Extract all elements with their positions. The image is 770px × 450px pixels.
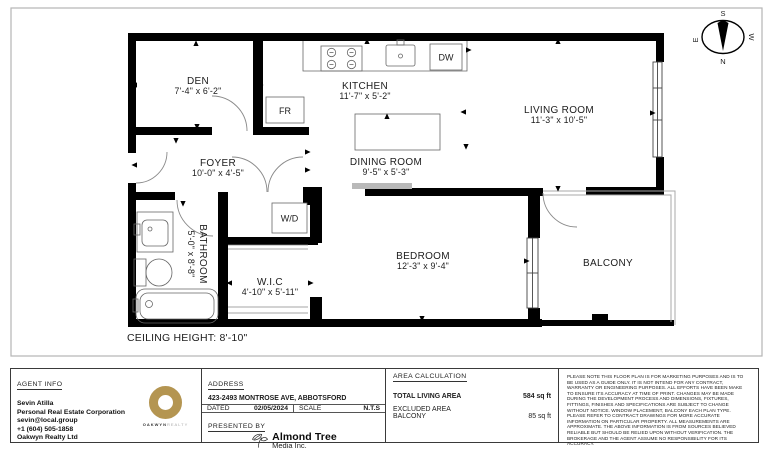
room-dims-living: 11'-3" x 10'-5" <box>531 115 587 125</box>
bathtub-icon <box>133 289 218 323</box>
compass-rose: S N E W <box>691 9 756 66</box>
dated-value: 02/05/2024 <box>254 405 288 412</box>
oakwyn-logo-word2: REALTY <box>167 422 188 427</box>
room-label-balcony: BALCONY <box>583 258 633 269</box>
footer-info-table: AGENT INFO Sevin Atilla Personal Real Es… <box>10 368 759 443</box>
area-calculation-header: AREA CALCULATION <box>393 373 467 382</box>
total-living-area-label: TOTAL LIVING AREA <box>393 393 461 400</box>
scale-value: N.T.S <box>363 405 380 412</box>
washer-dryer-label: W/D <box>281 214 299 224</box>
excluded-balcony-value: 85 sq ft <box>528 413 551 420</box>
fridge-box: FR <box>266 97 304 123</box>
fridge-label: FR <box>279 106 291 116</box>
room-label-bathroom: BATHROOM <box>197 224 208 283</box>
almond-tree-logo: Almond Tree Media Inc. <box>208 431 379 450</box>
walls <box>128 33 674 327</box>
room-dims-wic: 4'-10" x 5'-11" <box>242 287 298 297</box>
excluded-area-label: EXCLUDED AREA <box>393 406 551 413</box>
agent-email[interactable]: sevin@local.group <box>17 417 135 426</box>
dishwasher-box: DW <box>430 44 462 70</box>
agent-title: Personal Real Estate Corporation <box>17 409 135 418</box>
total-living-area-value: 584 sq ft <box>523 393 551 400</box>
room-dims-foyer: 10'-0" x 4'-5" <box>192 168 244 178</box>
scale-label: SCALE <box>299 405 321 412</box>
agent-info-cell: AGENT INFO Sevin Atilla Personal Real Es… <box>11 369 201 442</box>
dishwasher-label: DW <box>439 53 454 63</box>
toilet-icon <box>134 259 172 286</box>
room-dims-kitchen: 11'-7" x 5'-2" <box>339 91 390 101</box>
room-dims-dining: 9'-5" x 5'-3" <box>363 167 410 177</box>
room-dims-bathroom: 5'-0" x 8'-8" <box>186 231 196 278</box>
agent-phone[interactable]: +1 (604) 505-1858 <box>17 426 135 435</box>
vanity-sink-icon <box>134 212 173 252</box>
oakwyn-logo: OAKWYNREALTY <box>135 373 196 440</box>
dated-label: DATED <box>207 405 230 412</box>
kitchen-sink-icon <box>386 40 415 66</box>
room-dims-bedroom: 12'-3" x 9'-4" <box>397 261 449 271</box>
address-value: 423-2493 MONTROSE AVE, ABBOTSFORD <box>208 395 379 402</box>
address-cell: ADDRESS 423-2493 MONTROSE AVE, ABBOTSFOR… <box>201 369 385 442</box>
stove-icon <box>321 46 362 71</box>
living-room-window <box>653 62 662 157</box>
oakwyn-logo-word1: OAKWYN <box>143 422 167 427</box>
room-dims-den: 7'-4" x 6'-2" <box>175 86 222 96</box>
plan-border <box>11 8 762 356</box>
dining-table <box>355 114 440 150</box>
floor-plan-page: DW FR W/D <box>0 0 770 450</box>
leaf-icon <box>250 431 270 450</box>
ceiling-height-note: CEILING HEIGHT: 8'-10" <box>127 332 247 344</box>
compass-n: N <box>720 57 725 66</box>
wall-shading <box>352 183 412 189</box>
bedroom-window <box>527 238 538 308</box>
disclaimer-cell: PLEASE NOTE THIS FLOOR PLAN IS FOR MARKE… <box>558 369 758 442</box>
compass-w: W <box>747 33 756 41</box>
address-header: ADDRESS <box>208 381 244 390</box>
disclaimer-text: PLEASE NOTE THIS FLOOR PLAN IS FOR MARKE… <box>567 374 743 446</box>
compass-s: S <box>720 9 725 18</box>
agent-name: Sevin Atilla <box>17 400 135 409</box>
agent-info-header: AGENT INFO <box>17 381 62 390</box>
dated-scale-row: DATED 02/05/2024 SCALE N.T.S <box>202 404 385 413</box>
room-label-bathroom-group: BATHROOM 5'-0" x 8'-8" <box>186 224 208 283</box>
oakwyn-ring-icon <box>149 386 182 419</box>
agent-brokerage: Oakwyn Realty Ltd <box>17 434 135 443</box>
compass-e: E <box>691 37 700 42</box>
area-calculation-cell: AREA CALCULATION TOTAL LIVING AREA 584 s… <box>385 369 558 442</box>
dimension-arrows <box>131 38 655 321</box>
floor-plan-drawing: DW FR W/D <box>0 0 770 362</box>
washer-dryer-box: W/D <box>272 203 307 233</box>
excluded-balcony-label: BALCONY <box>393 413 426 420</box>
media-company-sub: Media Inc. <box>272 442 337 450</box>
